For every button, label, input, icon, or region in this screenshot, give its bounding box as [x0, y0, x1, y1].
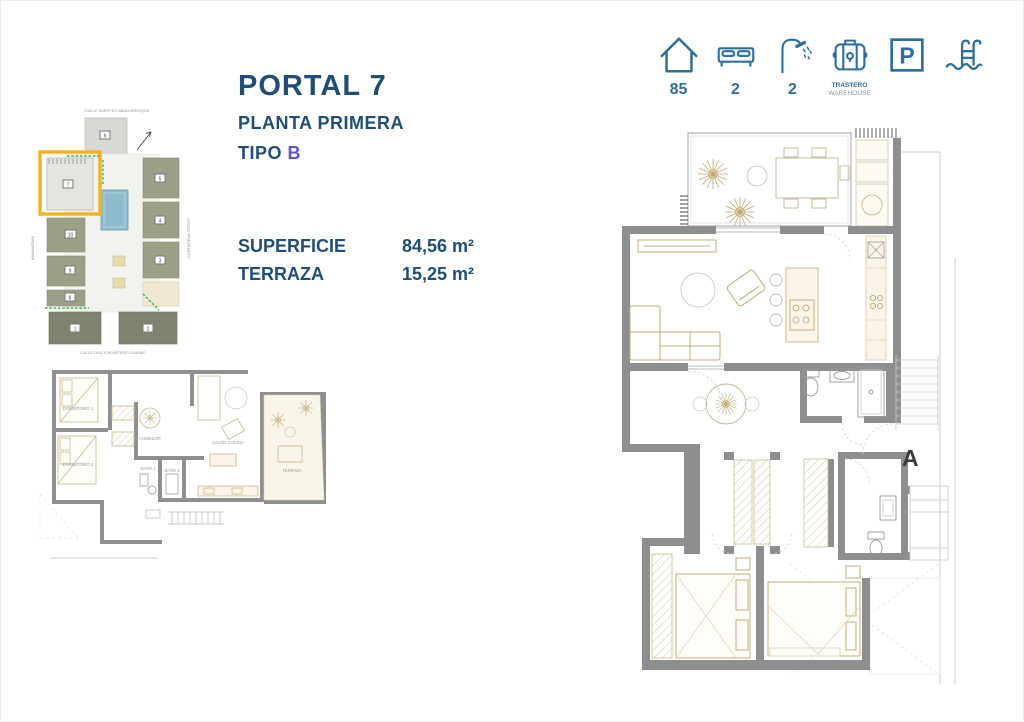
bedroom-1	[676, 558, 750, 658]
compass-icon	[137, 132, 151, 150]
house-icon	[656, 32, 702, 78]
small-label-comedor: COMEDOR	[139, 436, 161, 441]
terrace-dining	[776, 148, 849, 208]
small-label-terraza: TERRAZA	[282, 468, 302, 473]
storage-icon	[827, 32, 873, 78]
superficie-label: SUPERFICIE	[238, 236, 402, 257]
pool-icon	[941, 32, 987, 78]
small-label-bano1: BAÑO 1	[140, 466, 156, 471]
terraza-value: 15,25 m²	[402, 264, 474, 285]
bedroom-2	[768, 566, 860, 656]
bathroom-1	[804, 367, 884, 417]
small-label-dorm1: DORMITORIO 1	[63, 406, 94, 411]
type-line: TIPO B	[238, 143, 404, 164]
kitchen	[770, 236, 886, 360]
terraza-label: TERRAZA	[238, 264, 402, 285]
floor-subtitle: PLANTA PRIMERA	[238, 113, 404, 134]
site-number-1: 1	[74, 327, 77, 333]
small-label-bano2: BAÑO 2	[164, 468, 180, 473]
stairs	[896, 355, 938, 430]
amenity-storage: TRASTERO WAREHOUSE	[821, 32, 878, 99]
site-number-8: 8	[69, 296, 72, 302]
section-label: A	[902, 445, 919, 471]
small-label-salon: SALÓN COCINA	[212, 440, 244, 445]
type-value: B	[288, 143, 302, 163]
site-number-9: 9	[69, 269, 72, 275]
brochure-page: { "header": { "title": "PORTAL 7", "subt…	[0, 0, 1024, 722]
measurements: SUPERFICIE 84,56 m² TERRAZA 15,25 m²	[238, 236, 474, 292]
site-plan: CALLE SUERTES ABADORROQUE 6 7 10 9 8 5 4…	[25, 98, 197, 358]
site-number-3: 3	[159, 259, 162, 265]
street-top-label: CALLE SUERTES ABADORROQUE	[84, 108, 149, 113]
large-floor-plan: A	[618, 108, 1014, 692]
bed-icon	[713, 32, 759, 78]
type-label: TIPO	[238, 143, 282, 163]
site-number-4: 4	[159, 219, 162, 225]
page-title: PORTAL 7	[238, 70, 404, 103]
bedrooms-number: 2	[731, 81, 740, 99]
site-number-5: 5	[159, 177, 162, 183]
title-block: PORTAL 7 PLANTA PRIMERA TIPO B	[238, 70, 404, 164]
amenity-parking: P	[878, 32, 935, 99]
measure-row-terraza: TERRAZA 15,25 m²	[238, 264, 474, 285]
living-room	[630, 240, 766, 360]
small-floor-plan: DORMITORIO 1 DORMITORIO 2 COMEDOR SALÓN …	[38, 362, 350, 562]
surface-number: 85	[670, 81, 688, 99]
superficie-value: 84,56 m²	[402, 236, 474, 257]
shower-icon	[770, 32, 816, 78]
hall-dining	[693, 384, 759, 424]
boundary-lines	[902, 152, 955, 684]
storage-caption-en: WAREHOUSE	[828, 90, 870, 98]
amenity-bathrooms: 2	[764, 32, 821, 99]
amenity-pool	[935, 32, 992, 99]
site-number-2: 2	[147, 327, 150, 333]
site-number-7: 7	[67, 183, 70, 189]
terrace-utility	[856, 140, 888, 226]
amenities-bar: 85 2 2	[650, 32, 992, 99]
landing	[910, 486, 948, 560]
small-plan-stairs	[146, 510, 224, 524]
amenity-bedrooms: 2	[707, 32, 764, 99]
bathroom-2	[868, 496, 896, 556]
bathrooms-number: 2	[788, 81, 797, 99]
storage-caption: TRASTERO WAREHOUSE	[828, 82, 870, 98]
street-left-label: HABANERAS	[30, 235, 35, 260]
small-terrace	[264, 395, 324, 500]
parking-icon: P	[884, 32, 930, 78]
amenity-surface: 85	[650, 32, 707, 99]
street-right-label: CARTAGENA OTROS	[186, 218, 191, 258]
pool-area	[101, 190, 128, 230]
site-number-10: 10	[68, 233, 74, 239]
parking-letter: P	[899, 43, 914, 69]
measure-row-superficie: SUPERFICIE 84,56 m²	[238, 236, 474, 257]
street-bottom-label: CALLE DOCTOR ARTERO GUIRAO	[80, 350, 145, 355]
site-number-6: 6	[104, 134, 107, 140]
storage-caption-es: TRASTERO	[828, 82, 870, 90]
small-label-dorm2: DORMITORIO 2	[63, 462, 94, 467]
